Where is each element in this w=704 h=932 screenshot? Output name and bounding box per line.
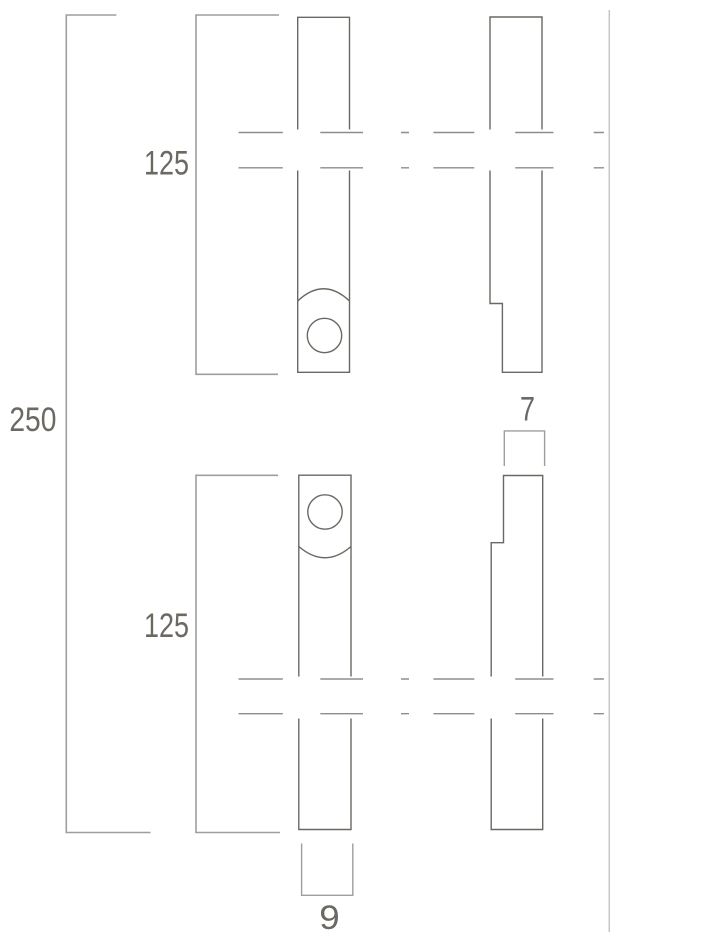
svg-text:7: 7	[520, 391, 535, 429]
svg-text:250: 250	[9, 401, 56, 439]
svg-text:9: 9	[319, 899, 340, 932]
svg-text:125: 125	[144, 607, 189, 645]
svg-text:125: 125	[144, 145, 189, 183]
